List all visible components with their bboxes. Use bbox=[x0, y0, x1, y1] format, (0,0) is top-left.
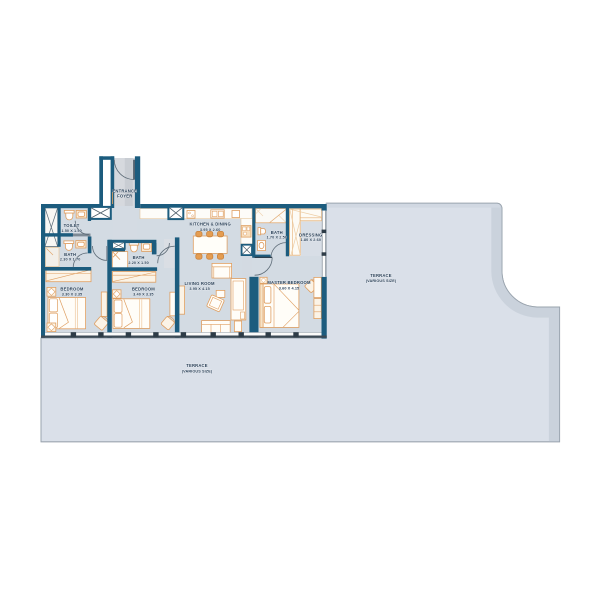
svg-text:3.30 X 3.35: 3.30 X 3.35 bbox=[62, 293, 83, 297]
svg-text:TOILET: TOILET bbox=[64, 223, 80, 228]
svg-text:BEDROOM: BEDROOM bbox=[60, 287, 83, 292]
svg-text:3.60 X 4.15: 3.60 X 4.15 bbox=[279, 286, 300, 290]
svg-text:MASTER BEDROOM: MASTER BEDROOM bbox=[267, 280, 311, 285]
svg-text:KITCHEN & DINING: KITCHEN & DINING bbox=[189, 222, 231, 227]
svg-text:3.95 X 4.15: 3.95 X 4.15 bbox=[189, 287, 210, 291]
svg-text:3.95 X 2.60: 3.95 X 2.60 bbox=[200, 228, 221, 232]
svg-text:TERRACE: TERRACE bbox=[370, 273, 392, 278]
svg-text:1.50 X 1.50: 1.50 X 1.50 bbox=[61, 229, 82, 233]
svg-text:(VARIOUS SIZE): (VARIOUS SIZE) bbox=[366, 279, 397, 283]
svg-text:(VARIOUS SIZE): (VARIOUS SIZE) bbox=[182, 370, 213, 374]
svg-text:FOYER: FOYER bbox=[117, 194, 132, 199]
svg-text:BATH: BATH bbox=[271, 230, 283, 235]
svg-text:DRESSING: DRESSING bbox=[299, 233, 322, 238]
svg-text:2.20 X 1.50: 2.20 X 1.50 bbox=[128, 261, 149, 265]
svg-text:BATH: BATH bbox=[64, 252, 76, 257]
svg-text:BEDROOM: BEDROOM bbox=[132, 287, 155, 292]
svg-text:1.70 X 2.50: 1.70 X 2.50 bbox=[267, 235, 288, 239]
svg-text:TERRACE: TERRACE bbox=[186, 363, 208, 368]
svg-text:LIVING ROOM: LIVING ROOM bbox=[185, 281, 215, 286]
svg-text:2.30 X 1.70: 2.30 X 1.70 bbox=[60, 258, 81, 262]
svg-text:3.40 X 3.35: 3.40 X 3.35 bbox=[133, 293, 154, 297]
svg-text:BATH: BATH bbox=[133, 255, 145, 260]
svg-text:1.80 X 2.60: 1.80 X 2.60 bbox=[301, 238, 322, 242]
